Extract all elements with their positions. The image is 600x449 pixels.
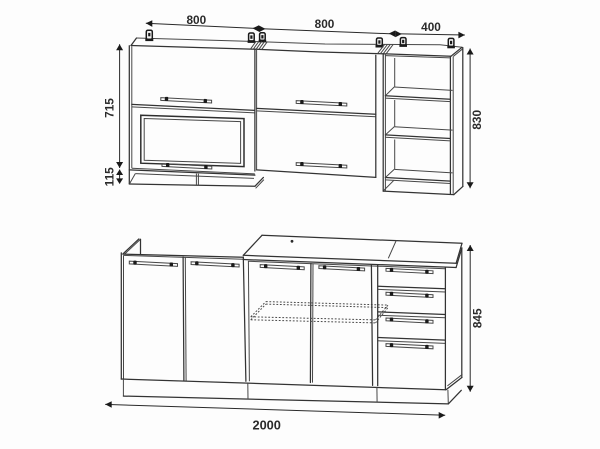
svg-text:715: 715 [102,98,116,118]
svg-text:800: 800 [315,17,335,31]
svg-text:800: 800 [186,13,206,27]
svg-text:400: 400 [421,20,441,34]
svg-text:115: 115 [102,167,116,186]
svg-text:830: 830 [470,110,484,130]
svg-text:2000: 2000 [252,418,280,433]
svg-text:845: 845 [470,308,484,328]
